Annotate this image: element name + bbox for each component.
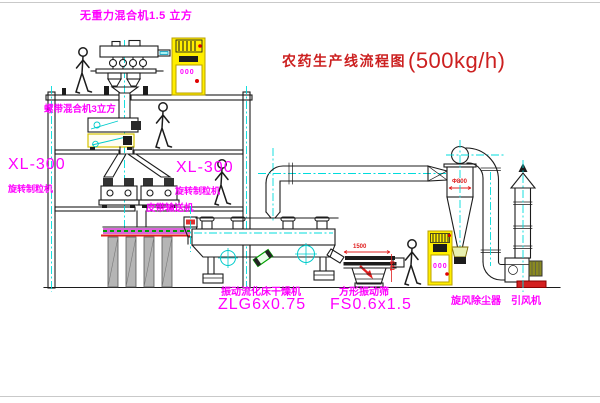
label-belt-conveyor: 皮带输送机 [146, 204, 194, 214]
worker-figure [156, 103, 172, 148]
cyclone-drawing [444, 140, 505, 264]
label-ribbon-mixer: 螺带混合机3立方 [44, 105, 116, 115]
label-granulator-center-name: 旋转制粒机 [175, 187, 220, 196]
v-chute [104, 147, 170, 177]
cabinet-ground-display: 000 [433, 263, 448, 270]
label-granulator-center-model: XL-300 [176, 160, 234, 176]
label-fan: 引风机 [511, 297, 541, 307]
control-cabinet-ground [428, 231, 452, 285]
diagram-title: 农药生产线流程图 (500kg/h) [282, 48, 505, 74]
label-cyclone: 旋风除尘器 [451, 297, 501, 307]
dimension-cyclone-diameter: Φ800 [452, 179, 467, 185]
label-gravity-free-mixer: 无重力混合机1.5 立方 [80, 11, 192, 22]
dimension-screen-length: 1500 [353, 244, 366, 250]
title-text: 农药生产线流程图 [282, 51, 406, 71]
vibrating-screen-drawing [344, 251, 405, 288]
control-cabinet-top [172, 38, 205, 95]
label-screen-model: FS0.6x1.5 [330, 297, 412, 313]
exhaust-duct [258, 163, 450, 184]
title-capacity: (500kg/h) [408, 48, 505, 74]
cad-process-flow-diagram: 农药生产线流程图 (500kg/h) 无重力混合机1.5 立方 螺带混合机3立方… [0, 0, 600, 403]
label-granulator-left-name: 旋转制粒机 [8, 185, 53, 194]
label-dryer-model: ZLG6x0.75 [218, 297, 306, 313]
induced-draft-fan-drawing [505, 258, 546, 288]
dimension-screen-height: 541 [388, 261, 394, 271]
ribbon-mixer-drawing [88, 118, 141, 150]
worker-figure [76, 48, 92, 93]
worker-figure [405, 240, 421, 285]
cabinet-top-display: 000 [180, 69, 195, 76]
belt-conveyor-drawing [101, 227, 190, 287]
label-granulator-left-model: XL-300 [8, 157, 66, 173]
